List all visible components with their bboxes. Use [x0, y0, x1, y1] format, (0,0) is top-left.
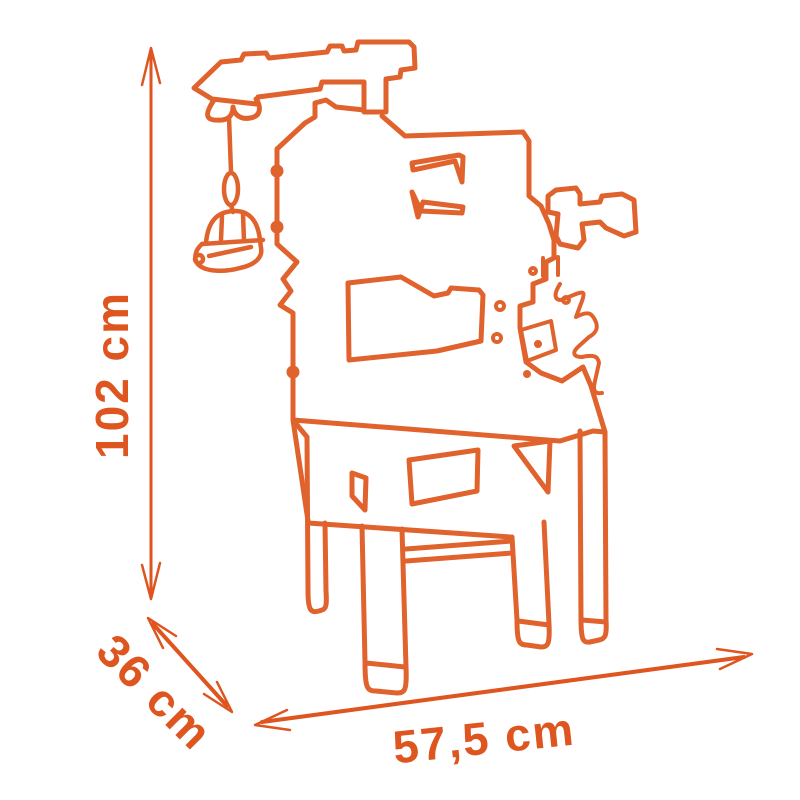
back-right-leg	[580, 431, 606, 642]
crane-boom	[194, 42, 415, 120]
toy-drill	[548, 188, 636, 248]
height-arrow	[142, 48, 160, 599]
workbench-body	[273, 100, 605, 437]
upper-slot-1	[412, 155, 463, 182]
upper-slot-2	[412, 192, 463, 217]
front-right-leg	[512, 522, 549, 647]
crane-hook	[195, 117, 263, 271]
apron-opening-rect	[409, 450, 478, 504]
apron-opening-small	[352, 473, 366, 510]
shelf-opening	[348, 277, 483, 360]
dimension-diagram: 102 cm 36 cm 57,5 cm	[0, 0, 800, 800]
height-dimension-label: 102 cm	[82, 265, 142, 485]
apron-opening-triangle	[514, 441, 550, 492]
workbench-table	[293, 420, 606, 693]
leg-stretcher	[406, 541, 512, 561]
